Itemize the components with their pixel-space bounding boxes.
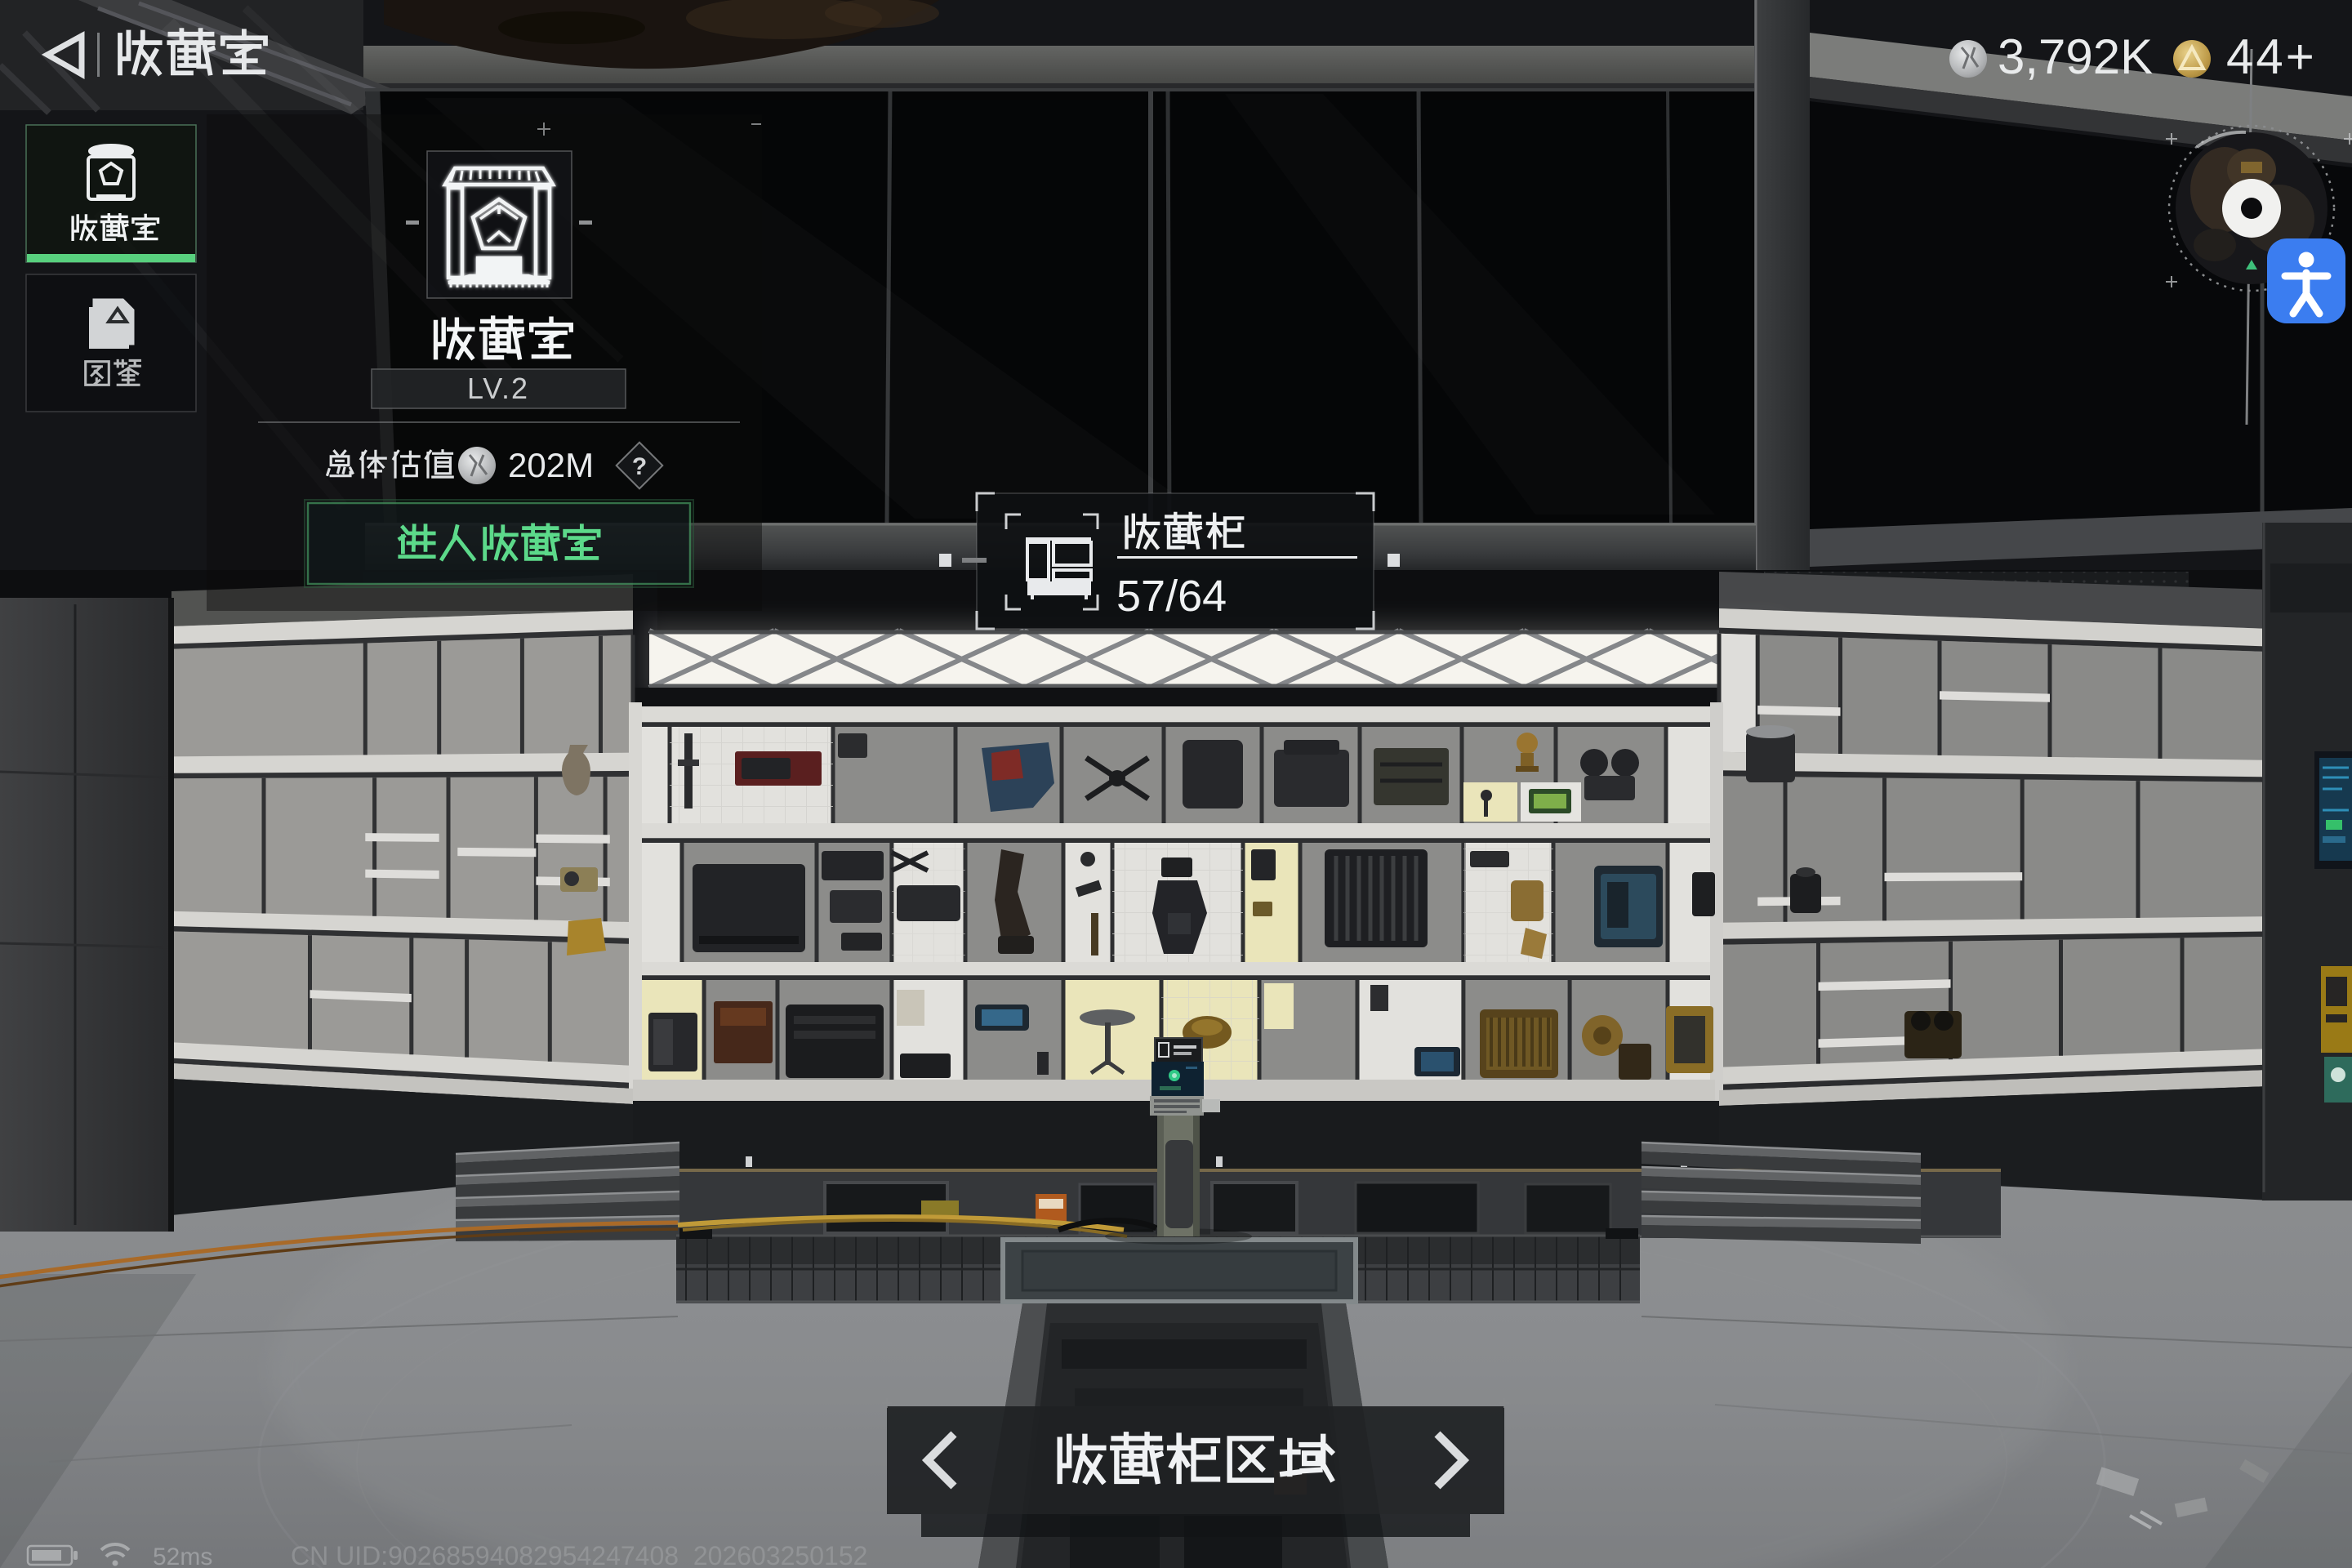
svg-text:52ms: 52ms bbox=[153, 1543, 212, 1568]
svg-text:3,792K: 3,792K bbox=[1998, 29, 2153, 84]
svg-text:?: ? bbox=[632, 453, 647, 480]
svg-text:202M: 202M bbox=[508, 446, 594, 484]
svg-text:LV.2: LV.2 bbox=[467, 372, 529, 405]
svg-text:57/64: 57/64 bbox=[1116, 572, 1227, 621]
svg-text:CN UID:90268594082954247408_20: CN UID:90268594082954247408_202603250152 bbox=[291, 1541, 867, 1568]
svg-text:44+: 44+ bbox=[2226, 29, 2317, 84]
